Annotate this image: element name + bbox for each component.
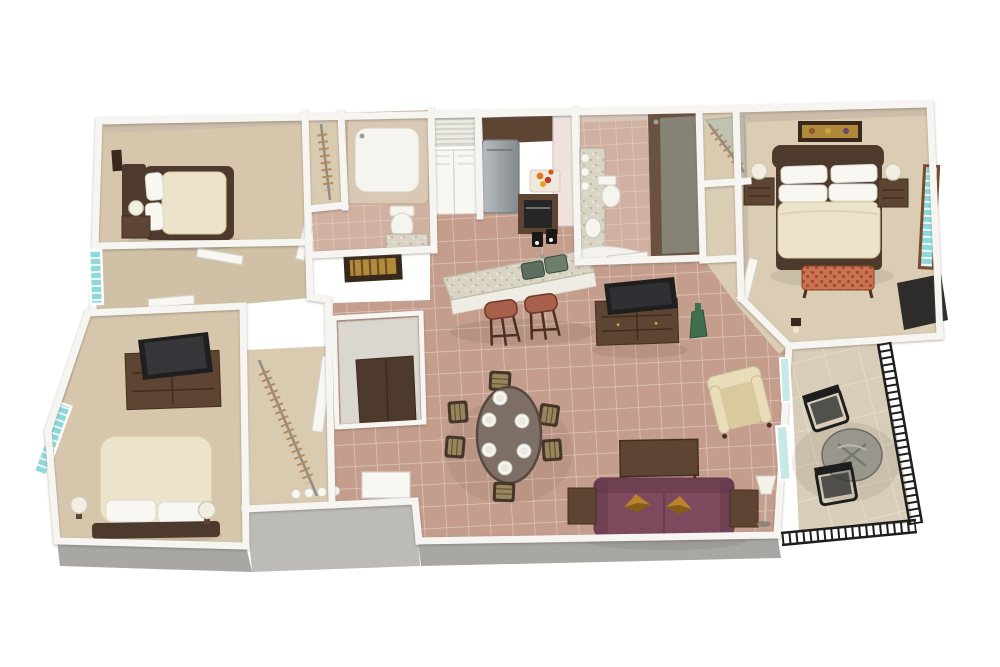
plate-6 xyxy=(498,461,512,475)
wall-bath1-east xyxy=(431,111,434,250)
wall-closet1-east xyxy=(341,113,345,207)
dining-chair-foot xyxy=(493,482,516,503)
balcony-sidelight xyxy=(780,358,791,402)
wall-bedroom1-south xyxy=(96,242,309,246)
wall-master-west xyxy=(736,109,741,298)
master-artwork xyxy=(798,121,862,142)
vanity-light-1 xyxy=(581,154,589,162)
hall-south-door xyxy=(362,472,410,498)
bath2-sink xyxy=(585,218,601,238)
bedroom1-wall-art xyxy=(111,150,122,172)
plate-1 xyxy=(493,391,507,405)
island-shadow xyxy=(450,319,594,345)
plate-5 xyxy=(517,444,531,458)
wall-bedroom1-east xyxy=(305,113,310,297)
wall-bedroom2-east xyxy=(243,306,246,546)
vanity-light-3 xyxy=(581,182,589,190)
walk-in-shower xyxy=(648,112,701,258)
dining-chair-left-1 xyxy=(447,400,468,423)
railing-rail-bottom-outer xyxy=(782,532,917,545)
end-table-left xyxy=(568,488,596,524)
plate-4 xyxy=(482,443,496,457)
bed2-pillow-left xyxy=(106,500,156,522)
dining-chair-right-2 xyxy=(541,438,562,461)
wall-closet1-south xyxy=(309,205,345,209)
wall-bedroom2-south xyxy=(57,541,246,546)
vanity-light-2 xyxy=(581,168,589,176)
wall-entry-east xyxy=(478,113,480,216)
fruit-bowl xyxy=(530,169,560,192)
end-table-right xyxy=(730,490,758,527)
bedroom1-window xyxy=(89,250,103,304)
wall-kitchen-east xyxy=(575,110,578,262)
bed1-duvet xyxy=(162,172,226,234)
bathtub xyxy=(347,118,429,204)
range-oven xyxy=(518,194,558,234)
refrigerator xyxy=(482,140,519,213)
wall-bath2-south xyxy=(578,258,702,262)
balcony-door xyxy=(776,426,791,481)
wall-closet2-east xyxy=(328,300,332,505)
bed1-pillow-top xyxy=(145,172,164,200)
plate-3 xyxy=(515,414,529,428)
floor-plan-canvas xyxy=(0,0,1000,667)
bedroom2-dresser-tv xyxy=(125,332,221,410)
bed2-headboard xyxy=(92,521,220,539)
dining-chair-left-2 xyxy=(444,435,465,458)
floor-plan-rendering xyxy=(0,0,1000,667)
wall-hall2-south xyxy=(703,258,740,260)
entry-closet-doors xyxy=(429,150,478,215)
sofa xyxy=(594,478,734,536)
bath2-vanity xyxy=(580,148,605,260)
plate-2 xyxy=(482,413,496,427)
